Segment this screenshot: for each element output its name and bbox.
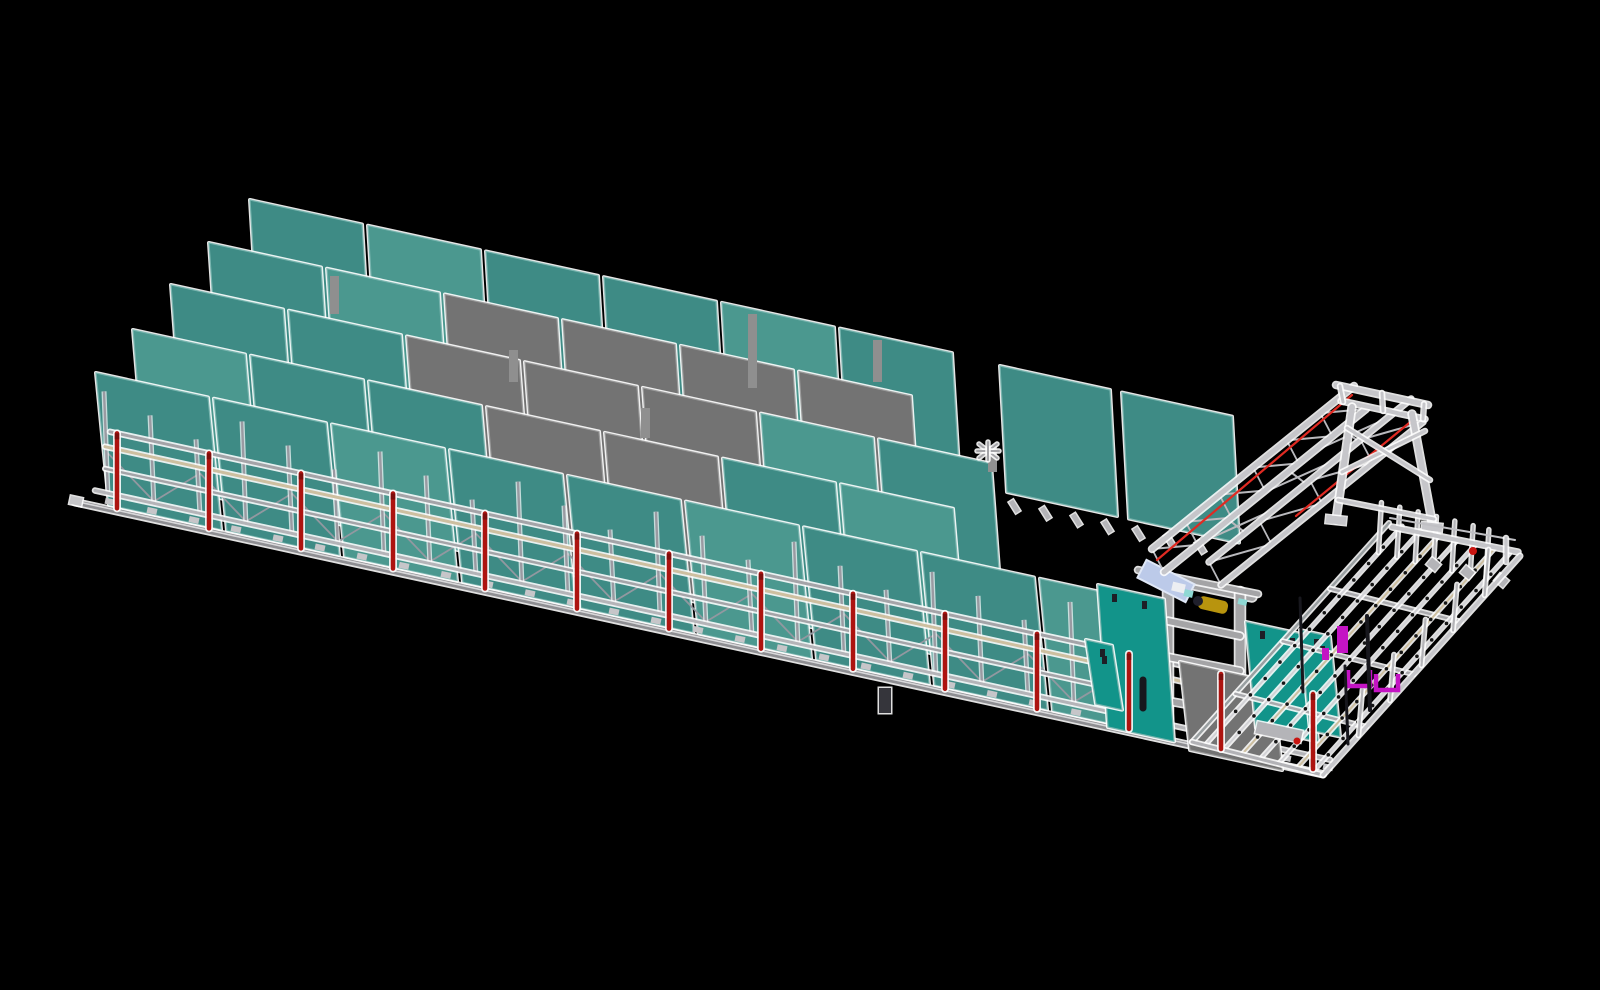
gantry-trestle bbox=[1324, 385, 1444, 534]
scene-svg bbox=[0, 0, 1600, 990]
cross-bracket bbox=[977, 442, 999, 460]
cad-render-glass-handling-line bbox=[0, 0, 1600, 990]
red-sensor-dot bbox=[1469, 547, 1477, 555]
panel-row-row-back-right bbox=[1000, 366, 1239, 543]
